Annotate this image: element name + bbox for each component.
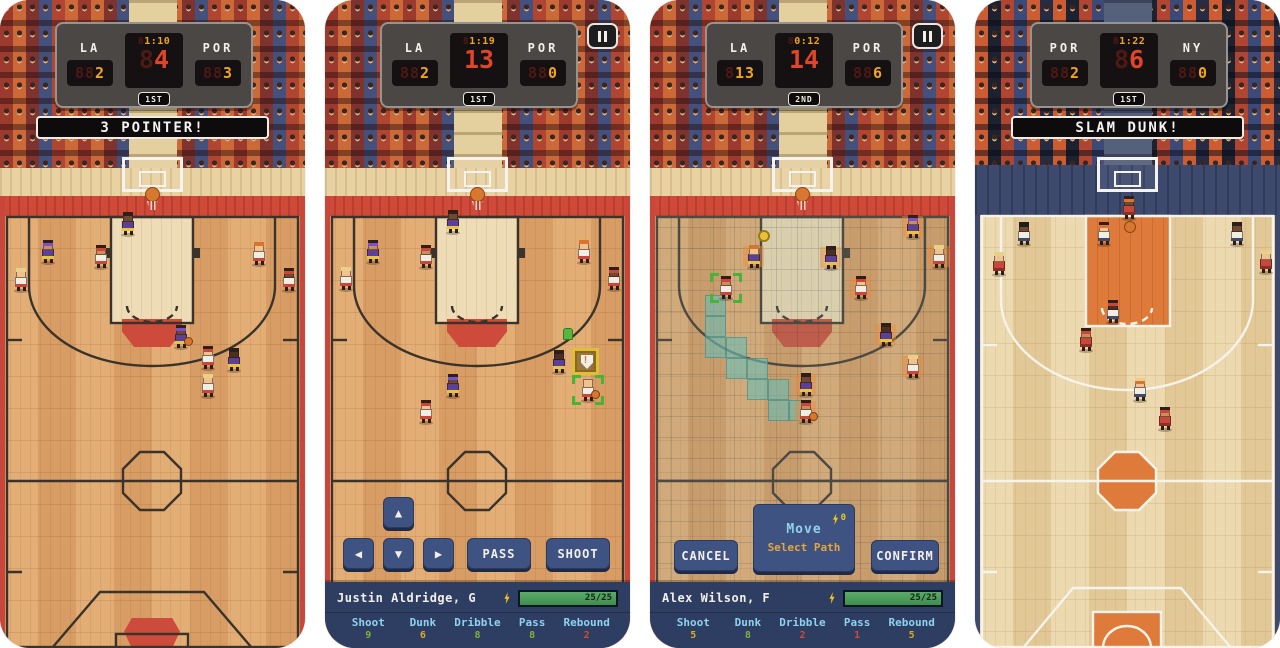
- cancel-button[interactable]: CANCEL: [674, 540, 738, 571]
- move-title: Move: [786, 522, 821, 537]
- lightning-bolt-icon: [828, 592, 836, 604]
- home-team-name: LA: [730, 41, 750, 55]
- home-team-name: LA: [405, 41, 425, 55]
- away-team-name: POR: [853, 41, 884, 55]
- period-badge: 1ST: [138, 92, 170, 106]
- stat-dunk: Dunk8: [721, 616, 776, 646]
- selected-player-bar: Justin Aldridge, G 25/25 Shoot9 Dunk6 Dr…: [325, 582, 630, 648]
- period-badge: 1ST: [463, 92, 495, 106]
- shot-clock: 14: [789, 47, 819, 73]
- home-team-name: LA: [80, 41, 100, 55]
- shoot-button[interactable]: SHOOT: [546, 538, 610, 569]
- away-team-name: POR: [528, 41, 559, 55]
- away-score: 886: [845, 60, 891, 86]
- home-score: 813: [717, 60, 763, 86]
- scoreboard: LA 813 80:12 14 2ND POR 886: [705, 22, 903, 108]
- stat-dribble: Dribble2: [775, 616, 830, 646]
- shield-exclaim-icon: !: [572, 348, 599, 375]
- stat-pass: Pass1: [830, 616, 885, 646]
- move-action-panel: 0 Move Select Path: [753, 504, 855, 572]
- pickup-icon: [563, 328, 573, 340]
- away-score: 883: [195, 60, 241, 86]
- arrow-down-icon: ▼: [395, 547, 402, 561]
- stamina-value: 25/25: [585, 593, 612, 603]
- arrow-up-icon: ▲: [395, 506, 402, 520]
- shot-clock: 84: [139, 47, 169, 73]
- home-team-name: POR: [1050, 41, 1081, 55]
- away-team-name: NY: [1183, 41, 1203, 55]
- shot-clock: 13: [464, 47, 494, 73]
- stamina-bar: 25/25: [518, 590, 618, 607]
- player-stats: Shoot9 Dunk6 Dribble8 Pass8 Rebound2: [325, 612, 630, 646]
- player-stats: Shoot5 Dunk8 Dribble2 Pass1 Rebound5: [650, 612, 955, 646]
- pause-button[interactable]: [912, 23, 943, 49]
- pause-icon: [598, 31, 601, 42]
- dpad-up-button[interactable]: ▲: [383, 497, 414, 528]
- stat-rebound: Rebound2: [559, 616, 614, 646]
- game-screenshot-4: POR 882 81:22 86 1ST NY 880 SLAM DUNK!: [975, 0, 1280, 648]
- dpad-left-button[interactable]: ◀: [343, 538, 374, 569]
- ball-target-icon: [758, 230, 770, 242]
- selected-player-bar: Alex Wilson, F 25/25 Shoot5 Dunk8 Dribbl…: [650, 582, 955, 648]
- app-store-screenshot-strip: LA 882 81:10 84 1ST POR 883 3 POINTER!: [0, 0, 1280, 648]
- stamina-value: 25/25: [910, 593, 937, 603]
- move-subtitle: Select Path: [768, 541, 841, 554]
- stat-shoot: Shoot9: [341, 616, 396, 646]
- clock-display: 81:19 13: [450, 33, 508, 88]
- game-screenshot-3: LA 813 80:12 14 2ND POR 886 0 Move Selec…: [650, 0, 955, 648]
- stat-dribble: Dribble8: [450, 616, 505, 646]
- move-cost: 0: [841, 513, 846, 523]
- stat-pass: Pass8: [505, 616, 560, 646]
- player-name: Alex Wilson, F: [662, 591, 821, 605]
- shot-clock: 86: [1114, 47, 1144, 73]
- arrow-right-icon: ▶: [435, 547, 442, 561]
- stat-rebound: Rebound5: [884, 616, 939, 646]
- period-badge: 2ND: [788, 92, 820, 106]
- home-score: 882: [1042, 60, 1088, 86]
- clock-display: 81:22 86: [1100, 33, 1158, 88]
- pause-button[interactable]: [587, 23, 618, 49]
- away-score: 880: [1170, 60, 1216, 86]
- scoreboard: LA 882 81:10 84 1ST POR 883: [55, 22, 253, 108]
- scoreboard: POR 882 81:22 86 1ST NY 880: [1030, 22, 1228, 108]
- away-score: 880: [520, 60, 566, 86]
- period-badge: 1ST: [1113, 92, 1145, 106]
- arrow-left-icon: ◀: [355, 547, 362, 561]
- stat-dunk: Dunk6: [396, 616, 451, 646]
- pass-button[interactable]: PASS: [467, 538, 531, 569]
- stat-shoot: Shoot5: [666, 616, 721, 646]
- scoreboard: LA 882 81:19 13 1ST POR 880: [380, 22, 578, 108]
- lightning-bolt-icon: [503, 592, 511, 604]
- lightning-bolt-icon: [832, 513, 840, 525]
- event-banner: SLAM DUNK!: [1011, 116, 1244, 139]
- pause-icon: [923, 31, 926, 42]
- confirm-button[interactable]: CONFIRM: [871, 540, 939, 571]
- clock-display: 81:10 84: [125, 33, 183, 88]
- dpad-right-button[interactable]: ▶: [423, 538, 454, 569]
- event-banner: 3 POINTER!: [36, 116, 269, 139]
- game-screenshot-2: ! LA 882 81:19 13 1ST POR 880 ▲ ◀ ▼ ▶ PA…: [325, 0, 630, 648]
- basketball-icon: [1124, 221, 1136, 233]
- away-team-name: POR: [203, 41, 234, 55]
- dpad-down-button[interactable]: ▼: [383, 538, 414, 569]
- clock-display: 80:12 14: [775, 33, 833, 88]
- home-score: 882: [67, 60, 113, 86]
- game-screenshot-1: LA 882 81:10 84 1ST POR 883 3 POINTER!: [0, 0, 305, 648]
- player-name: Justin Aldridge, G: [337, 591, 496, 605]
- home-score: 882: [392, 60, 438, 86]
- stamina-bar: 25/25: [843, 590, 943, 607]
